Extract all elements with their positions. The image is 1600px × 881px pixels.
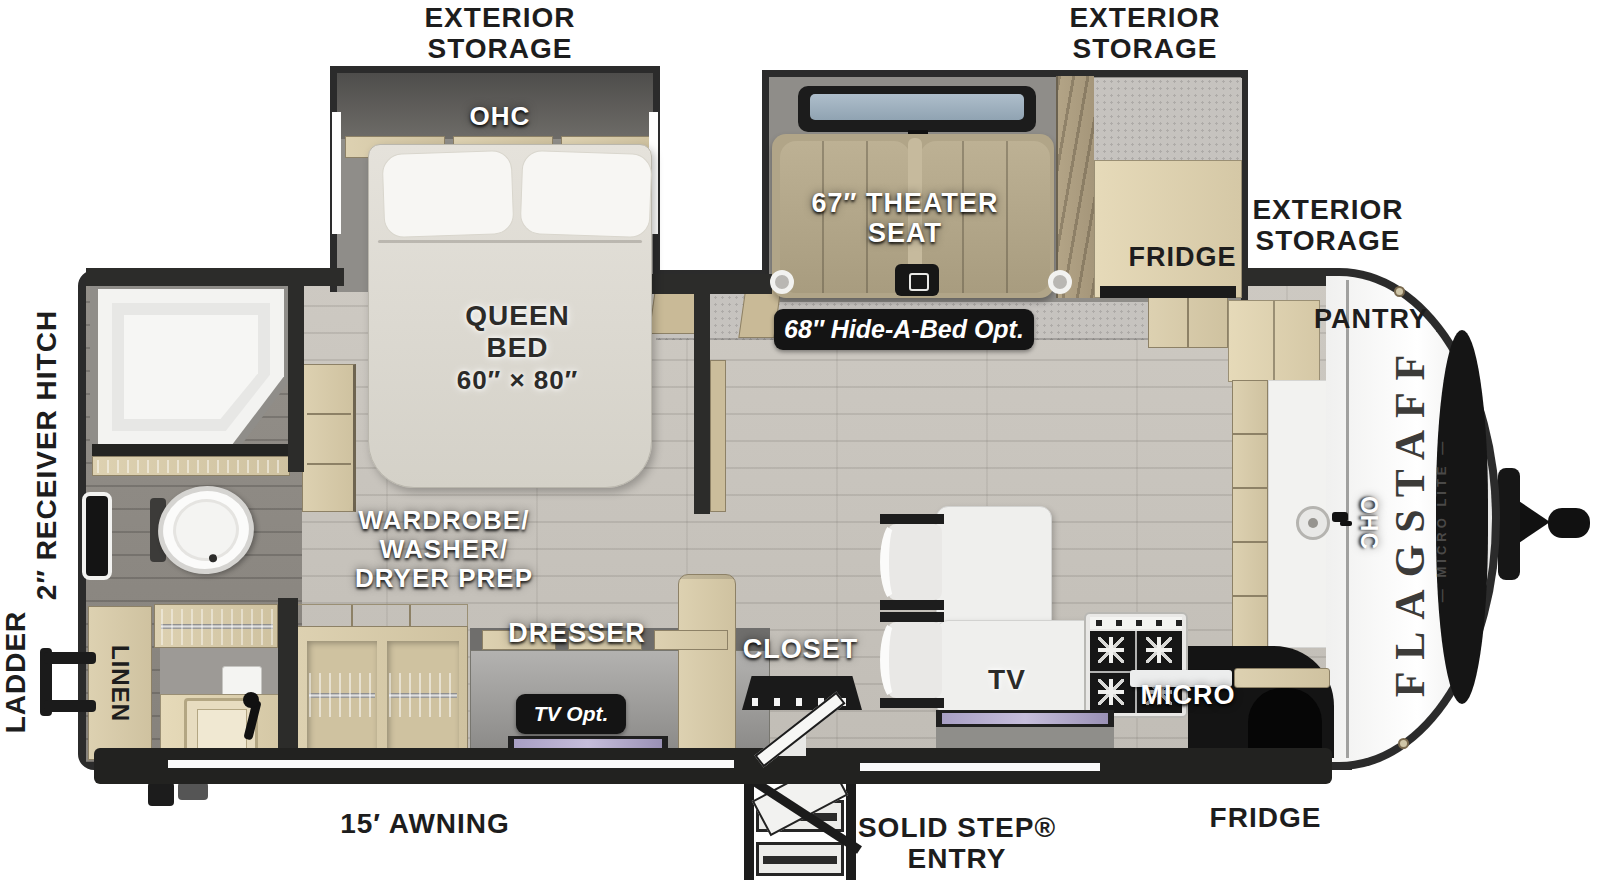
fridge-top-label: FRIDGE: [1120, 242, 1245, 272]
stove-burner-1: [1098, 637, 1124, 663]
wardrobe-top-shelf: [296, 604, 468, 628]
brand-decal: FLAGSTAFF: [1388, 337, 1432, 703]
exterior-storage-label-side: EXTERIOR STORAGE: [1238, 194, 1418, 257]
bath-lower-wall: [278, 598, 298, 762]
solid-step-entry-label: SOLID STEP® ENTRY: [852, 812, 1062, 875]
wardrobe-label: WARDROBE/ WASHER/ DRYER PREP: [338, 506, 550, 593]
solid-step-line2: ENTRY: [852, 843, 1062, 874]
kitchen-base-cabinets: [1232, 380, 1268, 650]
stove-knob-strip: [1090, 617, 1182, 629]
bedroom-ohc-label: OHC: [450, 102, 550, 131]
receiver-hitch-text: 2″ RECEIVER HITCH: [31, 310, 62, 600]
ext-storage-right-line1: EXTERIOR: [1040, 2, 1250, 33]
toilet-flush-dot: [208, 554, 217, 563]
bathroom-window: [82, 492, 112, 580]
stove-burner-3: [1098, 679, 1124, 705]
bedroom-living-wall: [694, 278, 710, 514]
ext-storage-right-line2: STORAGE: [1040, 33, 1250, 64]
top-wall-rear-segment: [86, 268, 344, 286]
chair2-back: [880, 620, 908, 700]
wardrobe-hangers-left: [309, 673, 375, 717]
toilet-seat: [169, 495, 243, 566]
ext-storage-left-line2: STORAGE: [395, 33, 605, 64]
step-tread-2: [756, 842, 844, 876]
queen-bed-label-line2: BED: [425, 332, 610, 364]
hitch-coupler: [1548, 508, 1590, 538]
ladder-rung-bottom: [44, 700, 96, 712]
brand-sub-decal: — MICRO LITE —: [1429, 444, 1453, 596]
linen-label-text: LINEN: [106, 645, 133, 722]
cap-screw-bottom: [1398, 738, 1409, 749]
bedside-wardrobe-line2: [307, 463, 351, 465]
solid-step-line1: SOLID STEP®: [852, 812, 1062, 843]
console-outlet-icon: [909, 273, 929, 291]
dresser-label: DRESSER: [492, 618, 662, 648]
step-tread-2-grip: [763, 856, 837, 864]
interior-fridge: [1248, 688, 1322, 754]
ladder-label: LADDER: [1, 607, 31, 737]
fridge-bottom-label: FRIDGE: [1198, 802, 1333, 833]
peninsula-tv: [936, 710, 1114, 727]
towel-rod-shelf: [92, 456, 290, 476]
stab-jack: [148, 782, 174, 806]
towel-rod-ticks: [97, 460, 285, 473]
bath-bedroom-wall: [288, 278, 304, 472]
tv-opt-badge: TV Opt.: [516, 694, 626, 734]
theater-console-plate: [895, 264, 939, 296]
ladder-text: LADDER: [0, 611, 31, 734]
ext-storage-side-line2: STORAGE: [1238, 225, 1418, 256]
closet-cabinet: [678, 574, 736, 762]
awning-label: 15′ AWNING: [330, 808, 520, 839]
slide-divider-wall: [1056, 76, 1094, 298]
peninsula-tv-screen: [942, 713, 1108, 724]
bedside-wardrobe-line1: [307, 413, 351, 415]
theater-window-glass: [810, 94, 1024, 120]
kitchen-sink-drain: [1308, 518, 1318, 528]
chair1-frame-bottom: [880, 600, 944, 610]
wardrobe-hangers-right: [389, 673, 457, 717]
cupholder-right: [1048, 270, 1072, 294]
wardrobe-label-line1: WARDROBE/: [338, 506, 550, 535]
drain-spout: [178, 782, 208, 800]
brand-name: FLAGSTAFF: [1386, 343, 1434, 698]
bedroom-window-left: [332, 112, 341, 234]
fridge-cabinet-front: [1100, 286, 1236, 298]
vanity-sink-bowl: [197, 709, 247, 749]
tongue-jack: [1498, 468, 1520, 580]
wardrobe-label-line2: WASHER/: [338, 535, 550, 564]
stove-burner-2: [1146, 637, 1172, 663]
ext-storage-left-line1: EXTERIOR: [395, 2, 605, 33]
bath-wardrobe-rod-cabinet: [154, 604, 278, 648]
dinette-chair-1: [880, 514, 944, 610]
queen-bed-label-line1: QUEEN: [425, 300, 610, 332]
bedside-wardrobe-left: [302, 364, 356, 512]
kitchen-ohc-label: OHC: [1353, 477, 1383, 569]
awning-rail-strip-2: [860, 763, 1100, 771]
dresser-drawer-3: [654, 630, 728, 650]
vanity-faucet-knob: [243, 692, 259, 708]
receiver-hitch-label: 2″ RECEIVER HITCH: [32, 290, 62, 620]
exterior-storage-label-right: EXTERIOR STORAGE: [1040, 2, 1250, 65]
micro-label: MICRO: [1124, 680, 1252, 710]
tv-label: TV: [962, 664, 1052, 696]
exterior-storage-label-left: EXTERIOR STORAGE: [395, 2, 605, 65]
pantry-upper-cabinet: [1148, 294, 1228, 348]
ladder-rung-top: [44, 652, 96, 664]
linen-label: LINEN: [104, 609, 135, 759]
dinette-chair-2: [880, 612, 944, 708]
chair2-frame-bottom: [880, 698, 944, 708]
theater-seat-label-line2: SEAT: [795, 218, 1015, 248]
kitchen-faucet-handle: [1340, 521, 1352, 526]
awning-rail-strip: [168, 760, 734, 768]
ext-storage-side-line1: EXTERIOR: [1238, 194, 1418, 225]
dinette-table-upper: [936, 506, 1052, 632]
floorplan-image: LINEN OHC QUEEN BED 60″ × 80″: [0, 0, 1600, 881]
bath-rod-hangers: [161, 609, 273, 645]
hide-a-bed-text: 68″ Hide-A-Bed Opt.: [784, 315, 1024, 344]
brand-sub: — MICRO LITE —: [1434, 438, 1449, 602]
wardrobe-label-line3: DRYER PREP: [338, 564, 550, 593]
pantry-label: PANTRY: [1306, 304, 1436, 334]
hitch-coupler-wedge: [1520, 498, 1550, 546]
bed-pillow-left: [382, 150, 515, 238]
closet-label: CLOSET: [738, 634, 863, 664]
bed-seam: [378, 240, 642, 243]
fridge-nook-carpet: [1094, 78, 1242, 162]
queen-bed-label-line3: 60″ × 80″: [425, 365, 610, 395]
kitchen-sink: [1296, 506, 1330, 540]
theater-seat-label: 67″ THEATER SEAT: [795, 188, 1015, 248]
top-wall-mid-segment: [650, 274, 772, 294]
bed-pillow-right: [520, 150, 653, 238]
queen-bed-label: QUEEN BED 60″ × 80″: [425, 300, 610, 395]
tv-opt-text: TV Opt.: [534, 702, 609, 726]
cap-screw-top: [1394, 286, 1405, 297]
bedroom-living-wall-cap: [710, 360, 726, 512]
theater-window: [798, 86, 1036, 132]
top-wall-front-segment: [1240, 268, 1332, 286]
hide-a-bed-badge: 68″ Hide-A-Bed Opt.: [774, 309, 1034, 350]
kitchen-ohc-text: OHC: [1355, 496, 1381, 550]
theater-seat-label-line1: 67″ THEATER: [795, 188, 1015, 218]
cupholder-left: [770, 270, 794, 294]
wardrobe-cabinet: [296, 626, 468, 762]
fridge-cabinet: [1094, 160, 1242, 298]
chair1-back: [880, 522, 908, 602]
